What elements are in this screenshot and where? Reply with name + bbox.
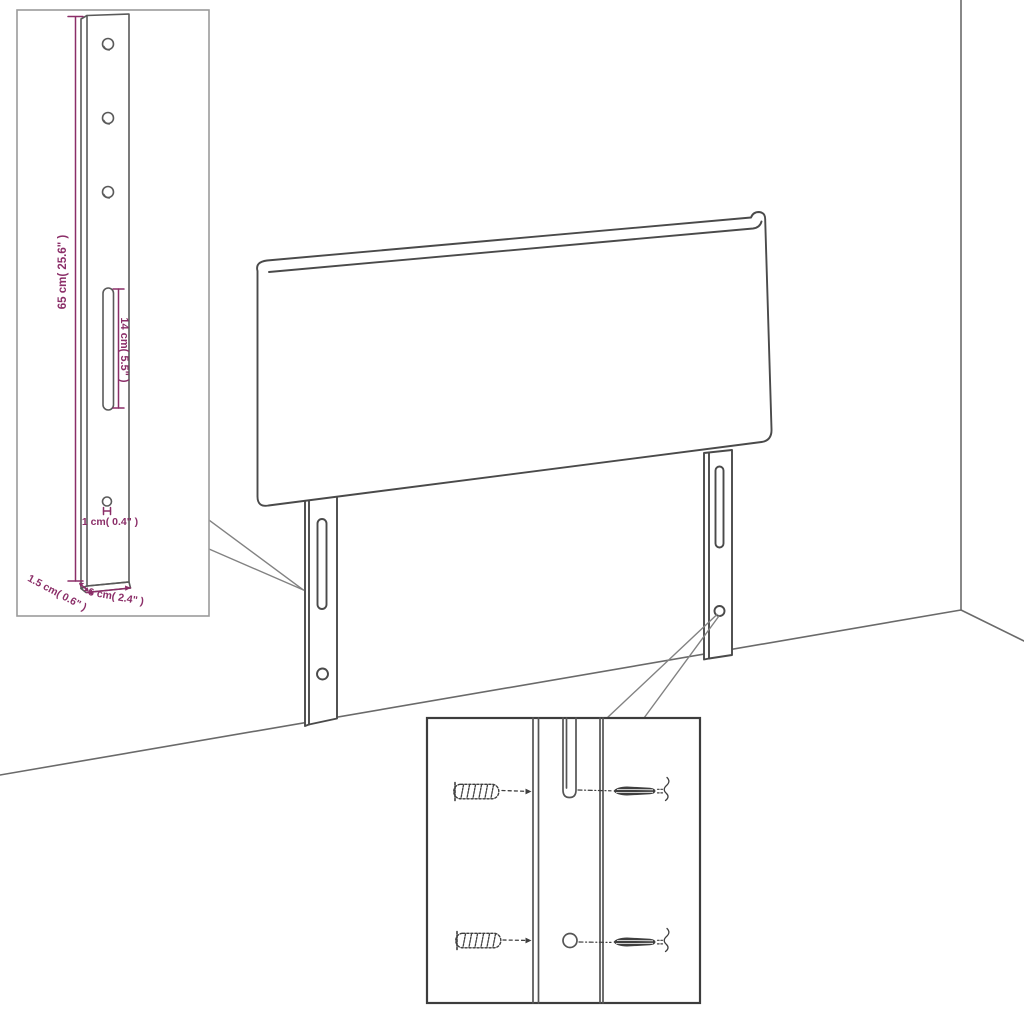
dim-label-hole: 1 cm( 0.4" ) <box>82 516 138 528</box>
mounting-detail-inset <box>427 718 700 1003</box>
left-leg-slot <box>318 519 327 609</box>
screw-body <box>614 787 656 796</box>
headboard-panel <box>257 212 771 506</box>
mounting-callout-line-left <box>607 615 717 719</box>
floor-line-right <box>961 610 1024 641</box>
mounting-callout-line-right <box>644 616 719 718</box>
left-leg-hole <box>317 669 328 680</box>
headboard-right-leg <box>704 450 732 660</box>
right-leg-slot <box>716 467 724 548</box>
dim-label-slot: 14 cm( 5.5" ) <box>118 317 130 382</box>
callout-lines <box>209 520 719 718</box>
headboard-left-leg <box>305 470 337 726</box>
screw-body <box>614 938 656 947</box>
headboard-assembly-diagram: 65 cm( 25.6" ) 14 cm( 5.5" ) 1 cm( 0.4" … <box>0 0 1024 1024</box>
line-art <box>0 0 1024 1024</box>
dim-label-height: 65 cm( 25.6" ) <box>57 235 69 310</box>
panel-outline <box>257 212 771 506</box>
